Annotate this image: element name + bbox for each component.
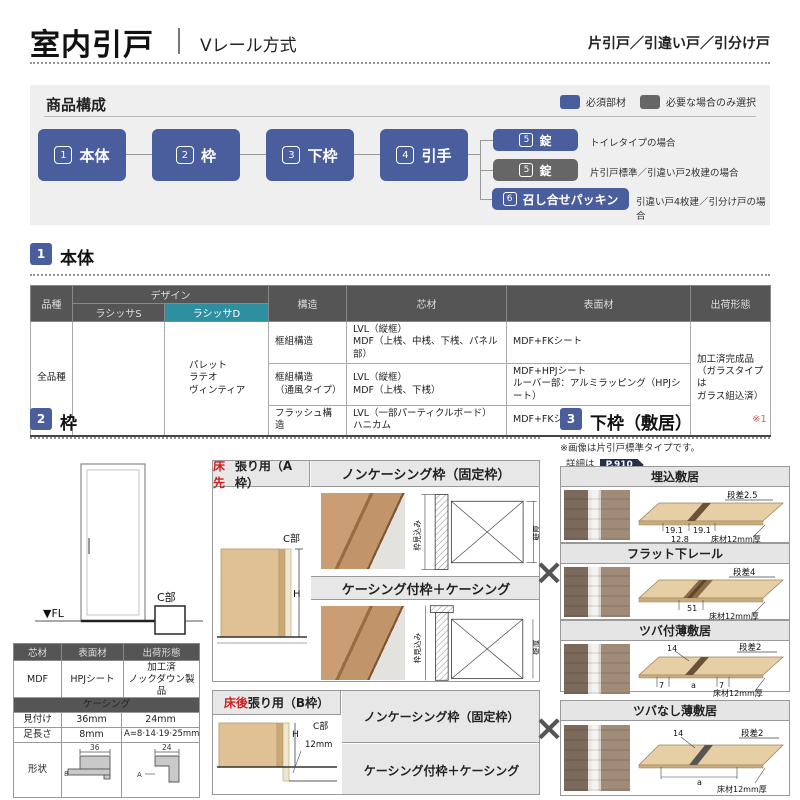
sill2-step: 段差4	[733, 567, 755, 578]
page-title: 室内引戸	[30, 20, 154, 64]
frame-a-header: 床先張り用（A枠）	[213, 461, 310, 487]
sill1-d1: 19.1	[665, 526, 683, 535]
casing-row2-v2: A=8·14·19·25mm	[122, 727, 200, 742]
sill-box-2: ツバなし薄敷居 14 段差2 a 床材12mm厚	[560, 700, 790, 796]
sill-diagram-3: 14 段差2 7 a 7 床材12mm厚	[633, 641, 789, 697]
connector	[126, 154, 152, 155]
branch-lock-optional: 5 錠	[493, 159, 578, 181]
branch-num-5b: 5	[519, 163, 533, 177]
frame-b-c-label: C部	[313, 720, 328, 732]
connector	[354, 154, 380, 155]
sill3-floor: 床材12mm厚	[713, 688, 763, 697]
legend: 必須部材 必要な場合のみ選択	[560, 94, 756, 109]
flow-item-body: 1 本体	[38, 129, 126, 181]
sill3-d0: 14	[667, 644, 677, 653]
flow-item-sill: 3 下枠	[266, 129, 354, 181]
section2-badge: 2	[30, 408, 52, 430]
section3-title: 下枠（敷居）	[590, 409, 692, 434]
col-ship: 出荷形態	[691, 286, 771, 322]
frame-b-red: 床後	[224, 694, 248, 711]
sill-diagram-2: 段差4 51 床材12mm厚	[633, 564, 789, 620]
wall-thickness-label: 壁厚	[532, 639, 540, 655]
cell-core-1: LVL（縦框） MDF（上桟、中桟、下桟、パネル部）	[347, 322, 507, 364]
frame-a-rest: 張り用（A枠）	[235, 460, 309, 491]
sill-box-1: 埋込敷居 段差2.5 19.1 19.1 12.8 床材12mm厚 フラット下レ…	[560, 466, 790, 692]
col-surface: 表面材	[507, 286, 691, 322]
door-elevation-diagram: ▼FL C部	[15, 458, 210, 638]
spec-ship: 加工済 ノックダウン製品	[124, 661, 200, 700]
frame-a-h-label: H	[293, 589, 301, 600]
branch-label-lock-b: 錠	[539, 162, 551, 179]
frame-a-red: 床先	[213, 460, 235, 491]
cell-kozo-3: フラッシュ構造	[269, 406, 347, 436]
section1-rule	[30, 274, 770, 276]
section1-title: 本体	[60, 244, 94, 269]
frame-depth-label: 枠見込み	[413, 520, 422, 551]
section2-title: 枠	[60, 409, 77, 434]
composition-panel: 商品構成 必須部材 必要な場合のみ選択 1 本体 2 枠 3 下枠 4 引手	[30, 85, 770, 225]
casing-profile-24-diagram: 24 A	[131, 744, 191, 792]
legend-optional-swatch	[640, 95, 660, 109]
sill-photo-3	[564, 644, 630, 694]
casing-row1-label: 見付け	[14, 712, 62, 727]
dim-8: 8	[64, 770, 68, 778]
composition-rule	[44, 116, 756, 117]
dim-36: 36	[90, 744, 100, 752]
frame-a-diagram: C部 H	[213, 487, 310, 682]
spec-col-ship: 出荷形態	[124, 644, 200, 661]
spec-col-core: 芯材	[14, 644, 62, 661]
sill-panel-title-3: ツバ付薄敷居	[561, 620, 789, 641]
legend-optional-label: 必要な場合のみ選択	[666, 94, 756, 109]
connector	[480, 140, 493, 141]
casing-table: ケーシング 見付け 36mm 24mm 足長さ 8mm A=8·14·19·25…	[13, 697, 200, 798]
frame-b-header: 床後張り用（B枠）	[213, 691, 341, 715]
frame-b-rest: 張り用（B枠）	[248, 694, 329, 711]
casing-profile-36-diagram: 36 8	[64, 744, 120, 792]
col-kozo: 構造	[269, 286, 347, 322]
sill2-d1: 51	[687, 604, 697, 613]
composition-title: 商品構成	[46, 94, 106, 115]
noncasing-section-diagram: 枠見込み 壁厚	[413, 491, 540, 573]
spec-surface: HPJシート	[62, 661, 124, 700]
connector	[480, 199, 492, 200]
sill1-floor: 床材12mm厚	[711, 534, 761, 543]
door-types-label: 片引戸／引違い戸／引分け戸	[588, 33, 770, 53]
casing-row2-v1: 8mm	[62, 727, 122, 742]
flow-label-frame: 枠	[201, 145, 216, 166]
flow-num-3: 3	[282, 146, 300, 164]
casing-row1-v1: 36mm	[62, 712, 122, 727]
cell-lasissa-d: パレット ラテオ ヴィンティア	[165, 322, 269, 436]
wall-thickness-label: 壁厚	[532, 525, 540, 541]
col-lasissa-d: ラシッサD	[165, 304, 269, 322]
branch-lock-toilet: 5 錠	[493, 129, 578, 151]
section1-badge: 1	[30, 243, 52, 265]
section2-rule	[30, 437, 540, 439]
dim-24: 24	[162, 744, 172, 752]
section3-ref: ※1	[752, 414, 767, 425]
header-rule	[30, 62, 770, 64]
sill3-d2: a	[691, 681, 696, 690]
branch-num-6: 6	[503, 192, 517, 206]
cell-lasissa-s	[73, 322, 165, 436]
sill-diagram-1: 段差2.5 19.1 19.1 12.8 床材12mm厚	[633, 487, 789, 543]
sill-panel-4: 14 段差2 a 床材12mm厚	[561, 721, 789, 795]
cell-kozo-2: 框組構造 （通風タイプ）	[269, 364, 347, 406]
casing-shape-label: 形状	[14, 742, 62, 797]
cell-surface-1: MDF+FKシート	[507, 322, 691, 364]
cell-core-2: LVL（縦框） MDF（上桟、下桟）	[347, 364, 507, 406]
branch-label-packing: 召し合せパッキン	[523, 191, 619, 208]
frame-b-h-label: H	[292, 730, 299, 740]
page: 室内引戸 Vレール方式 片引戸／引違い戸／引分け戸 商品構成 必須部材 必要な場…	[0, 0, 800, 800]
casing-shape-36: 36 8	[62, 742, 122, 797]
frame-b-casing-cell: ケーシング付枠＋ケーシング	[342, 744, 540, 795]
spec-core: MDF	[14, 661, 62, 700]
frame-spec-table: 芯材 表面材 出荷形態 MDF HPJシート 加工済 ノックダウン製品	[13, 643, 200, 700]
casing-row1-v2: 24mm	[122, 712, 200, 727]
frame-a-casing-header: ケーシング付枠＋ケーシング	[311, 576, 540, 600]
branch-note-toilet: トイレタイプの場合	[590, 135, 676, 149]
flow-num-1: 1	[54, 146, 72, 164]
table-row: 全品種 パレット ラテオ ヴィンティア 框組構造 LVL（縦框） MDF（上桟、…	[31, 322, 771, 364]
sill-diagram-4: 14 段差2 a 床材12mm厚	[633, 721, 789, 795]
section3-rule	[560, 437, 770, 439]
flow-label-handle: 引手	[421, 145, 451, 166]
col-hinshu: 品種	[31, 286, 73, 322]
sill-photo-2	[564, 567, 630, 617]
sill1-d3: 12.8	[671, 535, 689, 543]
cell-core-3: LVL（一部パーティクルボード） ハニカム	[347, 406, 507, 436]
frame-a-noncasing-header: ノンケーシング枠（固定枠）	[311, 461, 540, 487]
frame-b-noncasing-cell: ノンケーシング枠（固定枠）	[342, 691, 540, 743]
sill-panel-3: 14 段差2 7 a 7 床材12mm厚	[561, 641, 789, 697]
sill-photo-4	[564, 725, 630, 791]
col-core: 芯材	[347, 286, 507, 322]
frame-depth-label: 枠見込み	[413, 632, 422, 663]
casing-title: ケーシング	[14, 698, 200, 713]
flow-num-4: 4	[396, 146, 414, 164]
sill4-d0: 14	[673, 729, 683, 738]
flow-label-sill: 下枠	[307, 145, 337, 166]
legend-required-label: 必須部材	[586, 94, 626, 109]
dim-a: A	[137, 771, 142, 779]
frame-b-12mm-label: 12mm	[305, 740, 332, 750]
casing-shape-24: 24 A	[122, 742, 200, 797]
branch-num-5a: 5	[519, 133, 533, 147]
sill-panel-2: 段差4 51 床材12mm厚	[561, 564, 789, 620]
frame-a-c-label: C部	[283, 532, 300, 545]
sill-panel-1: 段差2.5 19.1 19.1 12.8 床材12mm厚	[561, 487, 789, 543]
col-design: デザイン	[73, 286, 269, 304]
fl-label: ▼FL	[43, 607, 65, 620]
header-divider	[178, 28, 180, 54]
frame-a-box: 床先張り用（A枠） C部 H ノンケーシング枠（固定枠）	[212, 460, 540, 682]
sill1-step: 段差2.5	[727, 490, 758, 501]
connector	[480, 170, 493, 171]
sill3-step: 段差2	[739, 642, 761, 653]
sill3-d1: 7	[659, 681, 664, 690]
page-subtitle: Vレール方式	[200, 31, 297, 56]
flow-label-body: 本体	[79, 145, 109, 166]
sill-photo-1	[564, 490, 630, 540]
sill2-floor: 床材12mm厚	[709, 611, 759, 620]
sill-panel-title-4: ツバなし薄敷居	[561, 701, 789, 721]
cell-kozo-1: 框組構造	[269, 322, 347, 364]
frame-b-box: 床後張り用（B枠） H C部 12mm ノンケーシング枠（固定枠） ケーシング付…	[212, 690, 540, 795]
connector	[240, 154, 266, 155]
sill4-step: 段差2	[741, 728, 763, 739]
sill4-floor: 床材12mm厚	[717, 784, 767, 794]
sill-panel-title-2: フラット下レール	[561, 543, 789, 564]
c-part-label: C部	[157, 590, 176, 604]
casing-section-diagram: 枠見込み 壁厚	[413, 604, 540, 682]
casing-row2-label: 足長さ	[14, 727, 62, 742]
sill1-d2: 19.1	[693, 526, 711, 535]
noncasing-photo	[321, 493, 405, 569]
branch-label-lock-a: 錠	[539, 132, 551, 149]
branch-note-optional: 片引戸標準／引違い戸2枚建の場合	[590, 165, 739, 179]
spec-col-surface: 表面材	[62, 644, 124, 661]
branch-packing: 6 召し合せパッキン	[492, 188, 629, 210]
section3-badge: 3	[560, 408, 582, 430]
connector	[468, 154, 480, 155]
col-lasissa-s: ラシッサS	[73, 304, 165, 322]
cell-surface-2: MDF+HPJシート ルーバー部：アルミラッピング（HPJシート）	[507, 364, 691, 406]
sill4-d2: a	[697, 778, 702, 787]
frame-b-diagram: H C部 12mm	[213, 715, 341, 795]
legend-required-swatch	[560, 95, 580, 109]
casing-photo	[321, 606, 405, 680]
flow-num-2: 2	[176, 146, 194, 164]
flow-item-frame: 2 枠	[152, 129, 240, 181]
sill-panel-title-1: 埋込敷居	[561, 467, 789, 487]
branch-note-packing: 引違い戸4枚建／引分け戸の場合	[636, 194, 770, 222]
flow-item-handle: 4 引手	[380, 129, 468, 181]
